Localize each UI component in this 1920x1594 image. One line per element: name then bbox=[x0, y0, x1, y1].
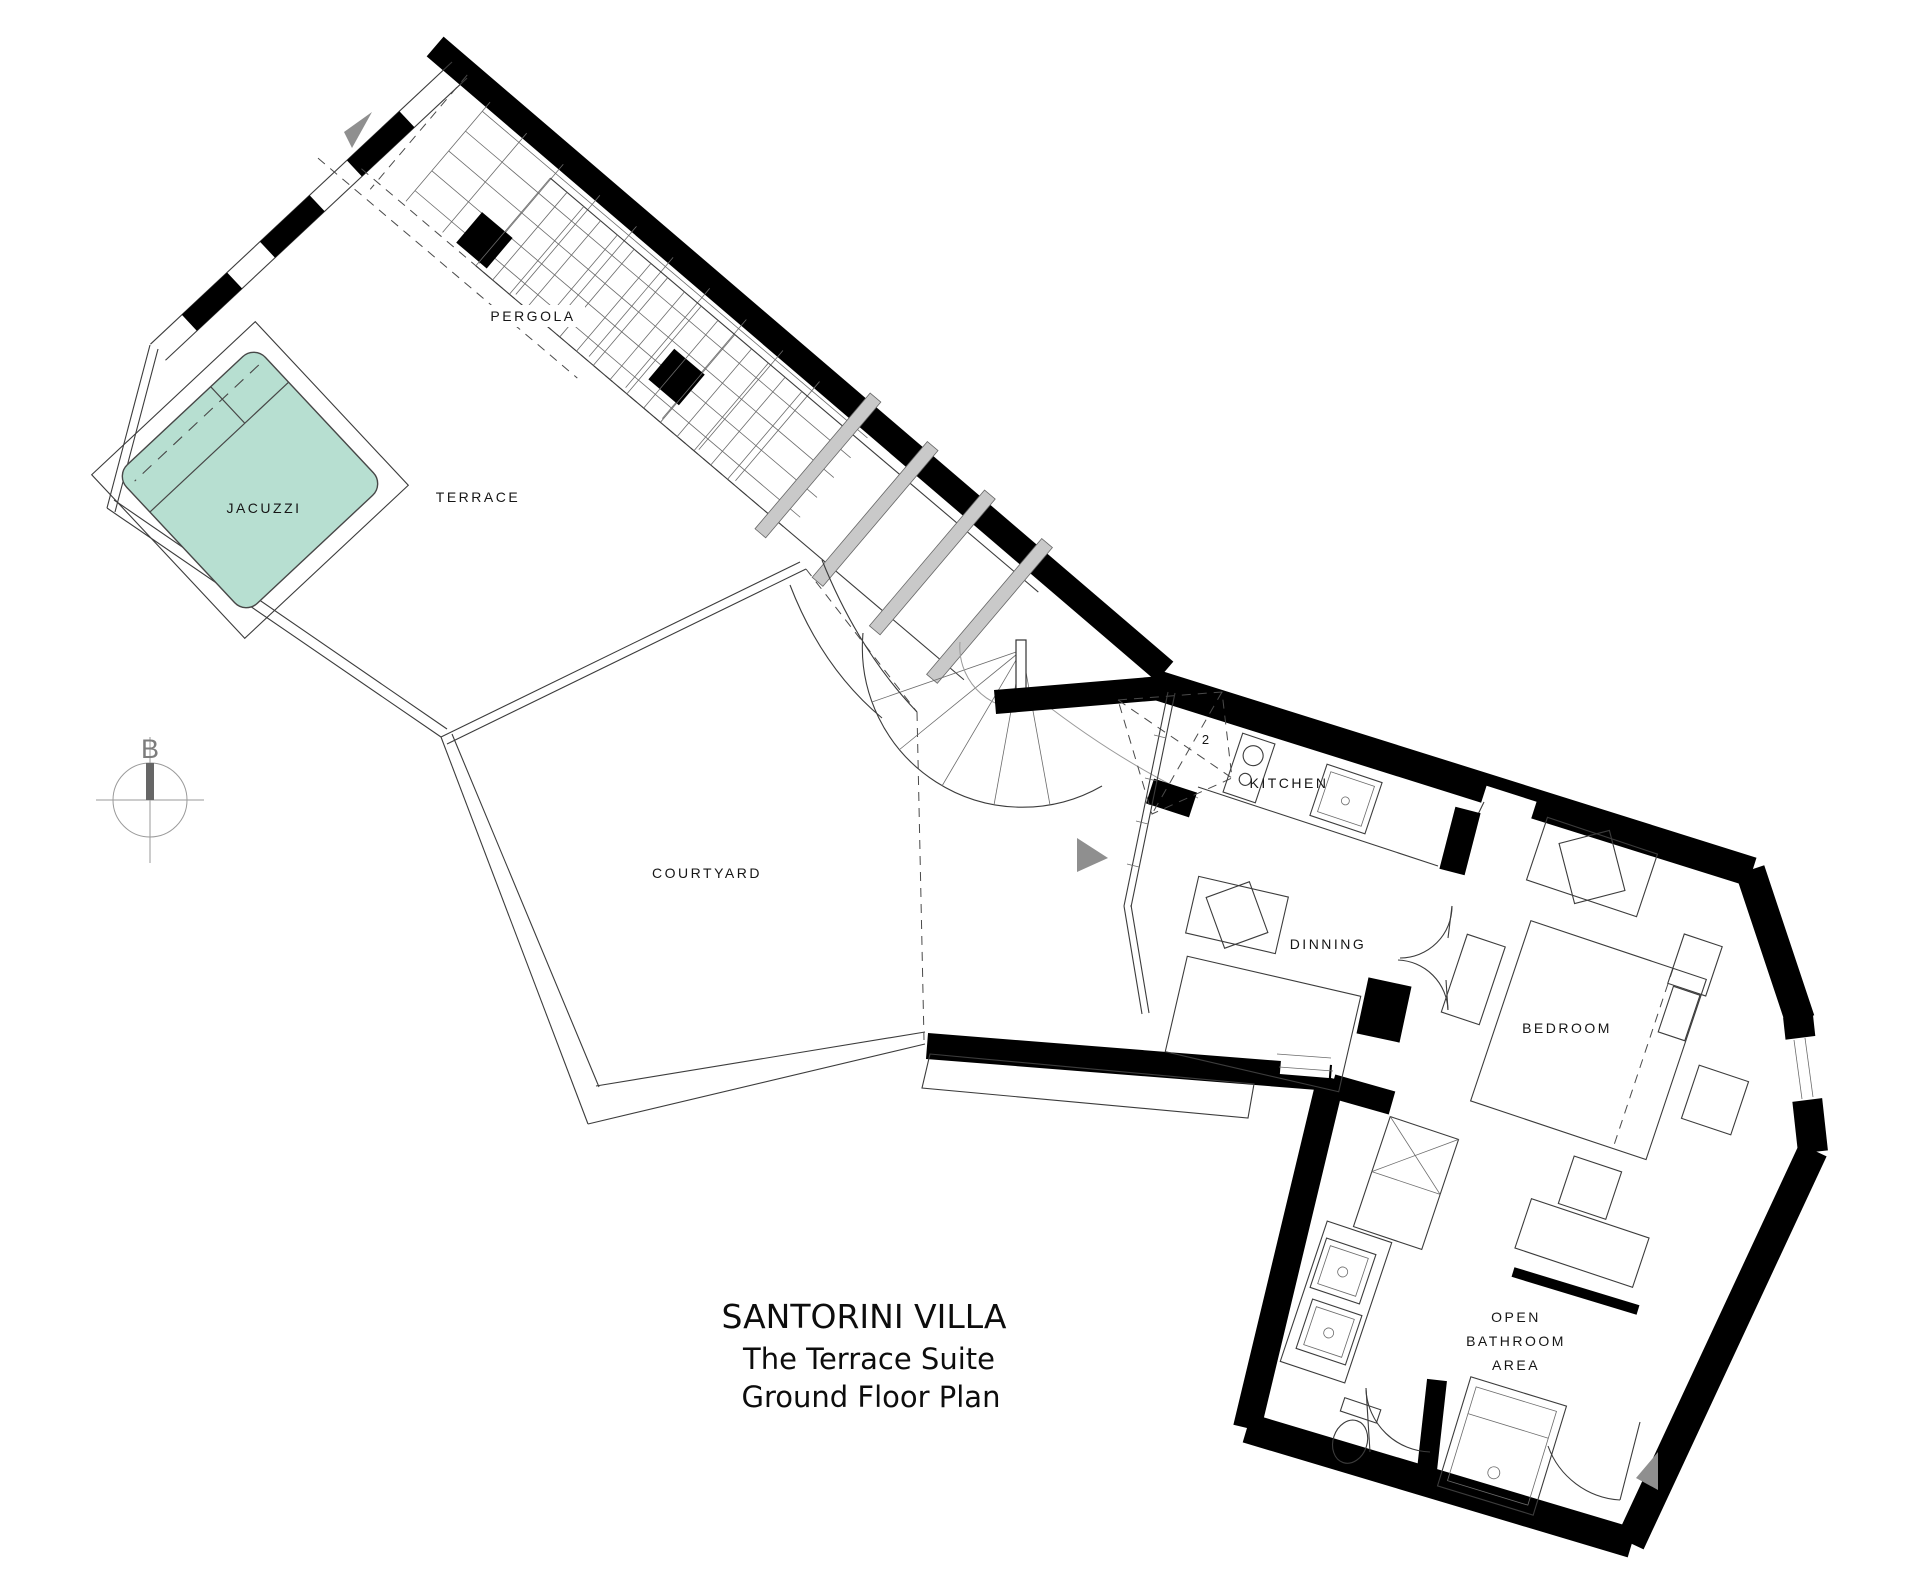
label-bathroom-2: BATHROOM bbox=[1466, 1333, 1566, 1349]
plan-subtitle: The Terrace Suite bbox=[742, 1342, 995, 1376]
stove bbox=[1223, 733, 1275, 803]
stair-newel-post bbox=[1016, 640, 1026, 692]
closet bbox=[1353, 1117, 1458, 1250]
side-table bbox=[1681, 1065, 1748, 1135]
bathroom-sink bbox=[1310, 1238, 1376, 1304]
pergola-post bbox=[648, 349, 704, 405]
title-block: SANTORINI VILLA The Terrace Suite Ground… bbox=[722, 1297, 1007, 1414]
label-pergola: PERGOLA bbox=[490, 308, 575, 324]
label-kitchen: KITCHEN bbox=[1250, 775, 1329, 791]
label-dining: DINNING bbox=[1290, 936, 1367, 952]
compass-letter: B bbox=[141, 734, 159, 764]
floor-plan-drawing: B PERGOLA JACUZZI TERRACE COURTYARD KITC… bbox=[0, 0, 1920, 1594]
bathroom-sink bbox=[1296, 1299, 1362, 1365]
shower-drain bbox=[1486, 1465, 1501, 1480]
label-bedroom: BEDROOM bbox=[1522, 1020, 1612, 1036]
suite-walls bbox=[927, 683, 1813, 1543]
pergola-structure bbox=[318, 22, 1066, 695]
bedroom-door-gap bbox=[1482, 800, 1532, 816]
bed bbox=[1471, 921, 1707, 1160]
plan-title: SANTORINI VILLA bbox=[722, 1297, 1007, 1336]
label-bathroom-1: OPEN bbox=[1491, 1309, 1541, 1325]
compass-needle bbox=[146, 763, 154, 800]
bedroom-area bbox=[1353, 811, 1748, 1288]
label-terrace: TERRACE bbox=[436, 489, 520, 505]
label-courtyard: COURTYARD bbox=[652, 865, 762, 881]
wall-segment bbox=[189, 280, 234, 322]
northwest-wall bbox=[150, 62, 467, 360]
label-stair-count: 2 bbox=[1202, 732, 1210, 747]
floor-plan-page: B PERGOLA JACUZZI TERRACE COURTYARD KITC… bbox=[0, 0, 1920, 1594]
counter-edge bbox=[1198, 787, 1438, 866]
wall-segment bbox=[267, 203, 317, 249]
courtyard-area bbox=[441, 562, 925, 1124]
arrow-icon bbox=[1077, 838, 1108, 872]
dining-area bbox=[1165, 870, 1360, 1091]
compass: B bbox=[96, 734, 204, 863]
plan-floor: Ground Floor Plan bbox=[742, 1380, 1001, 1414]
jacuzzi-pool bbox=[116, 346, 385, 615]
pergola-post bbox=[456, 212, 512, 268]
pillow bbox=[1658, 986, 1700, 1040]
label-bathroom-3: AREA bbox=[1492, 1357, 1540, 1373]
jacuzzi-area bbox=[92, 322, 409, 639]
upper-wing bbox=[92, 22, 1155, 737]
nightstand bbox=[1441, 934, 1505, 1024]
window-east bbox=[1799, 1038, 1807, 1100]
window-dining bbox=[1281, 1060, 1330, 1064]
sideboard bbox=[1186, 876, 1289, 953]
label-jacuzzi: JACUZZI bbox=[226, 500, 301, 516]
